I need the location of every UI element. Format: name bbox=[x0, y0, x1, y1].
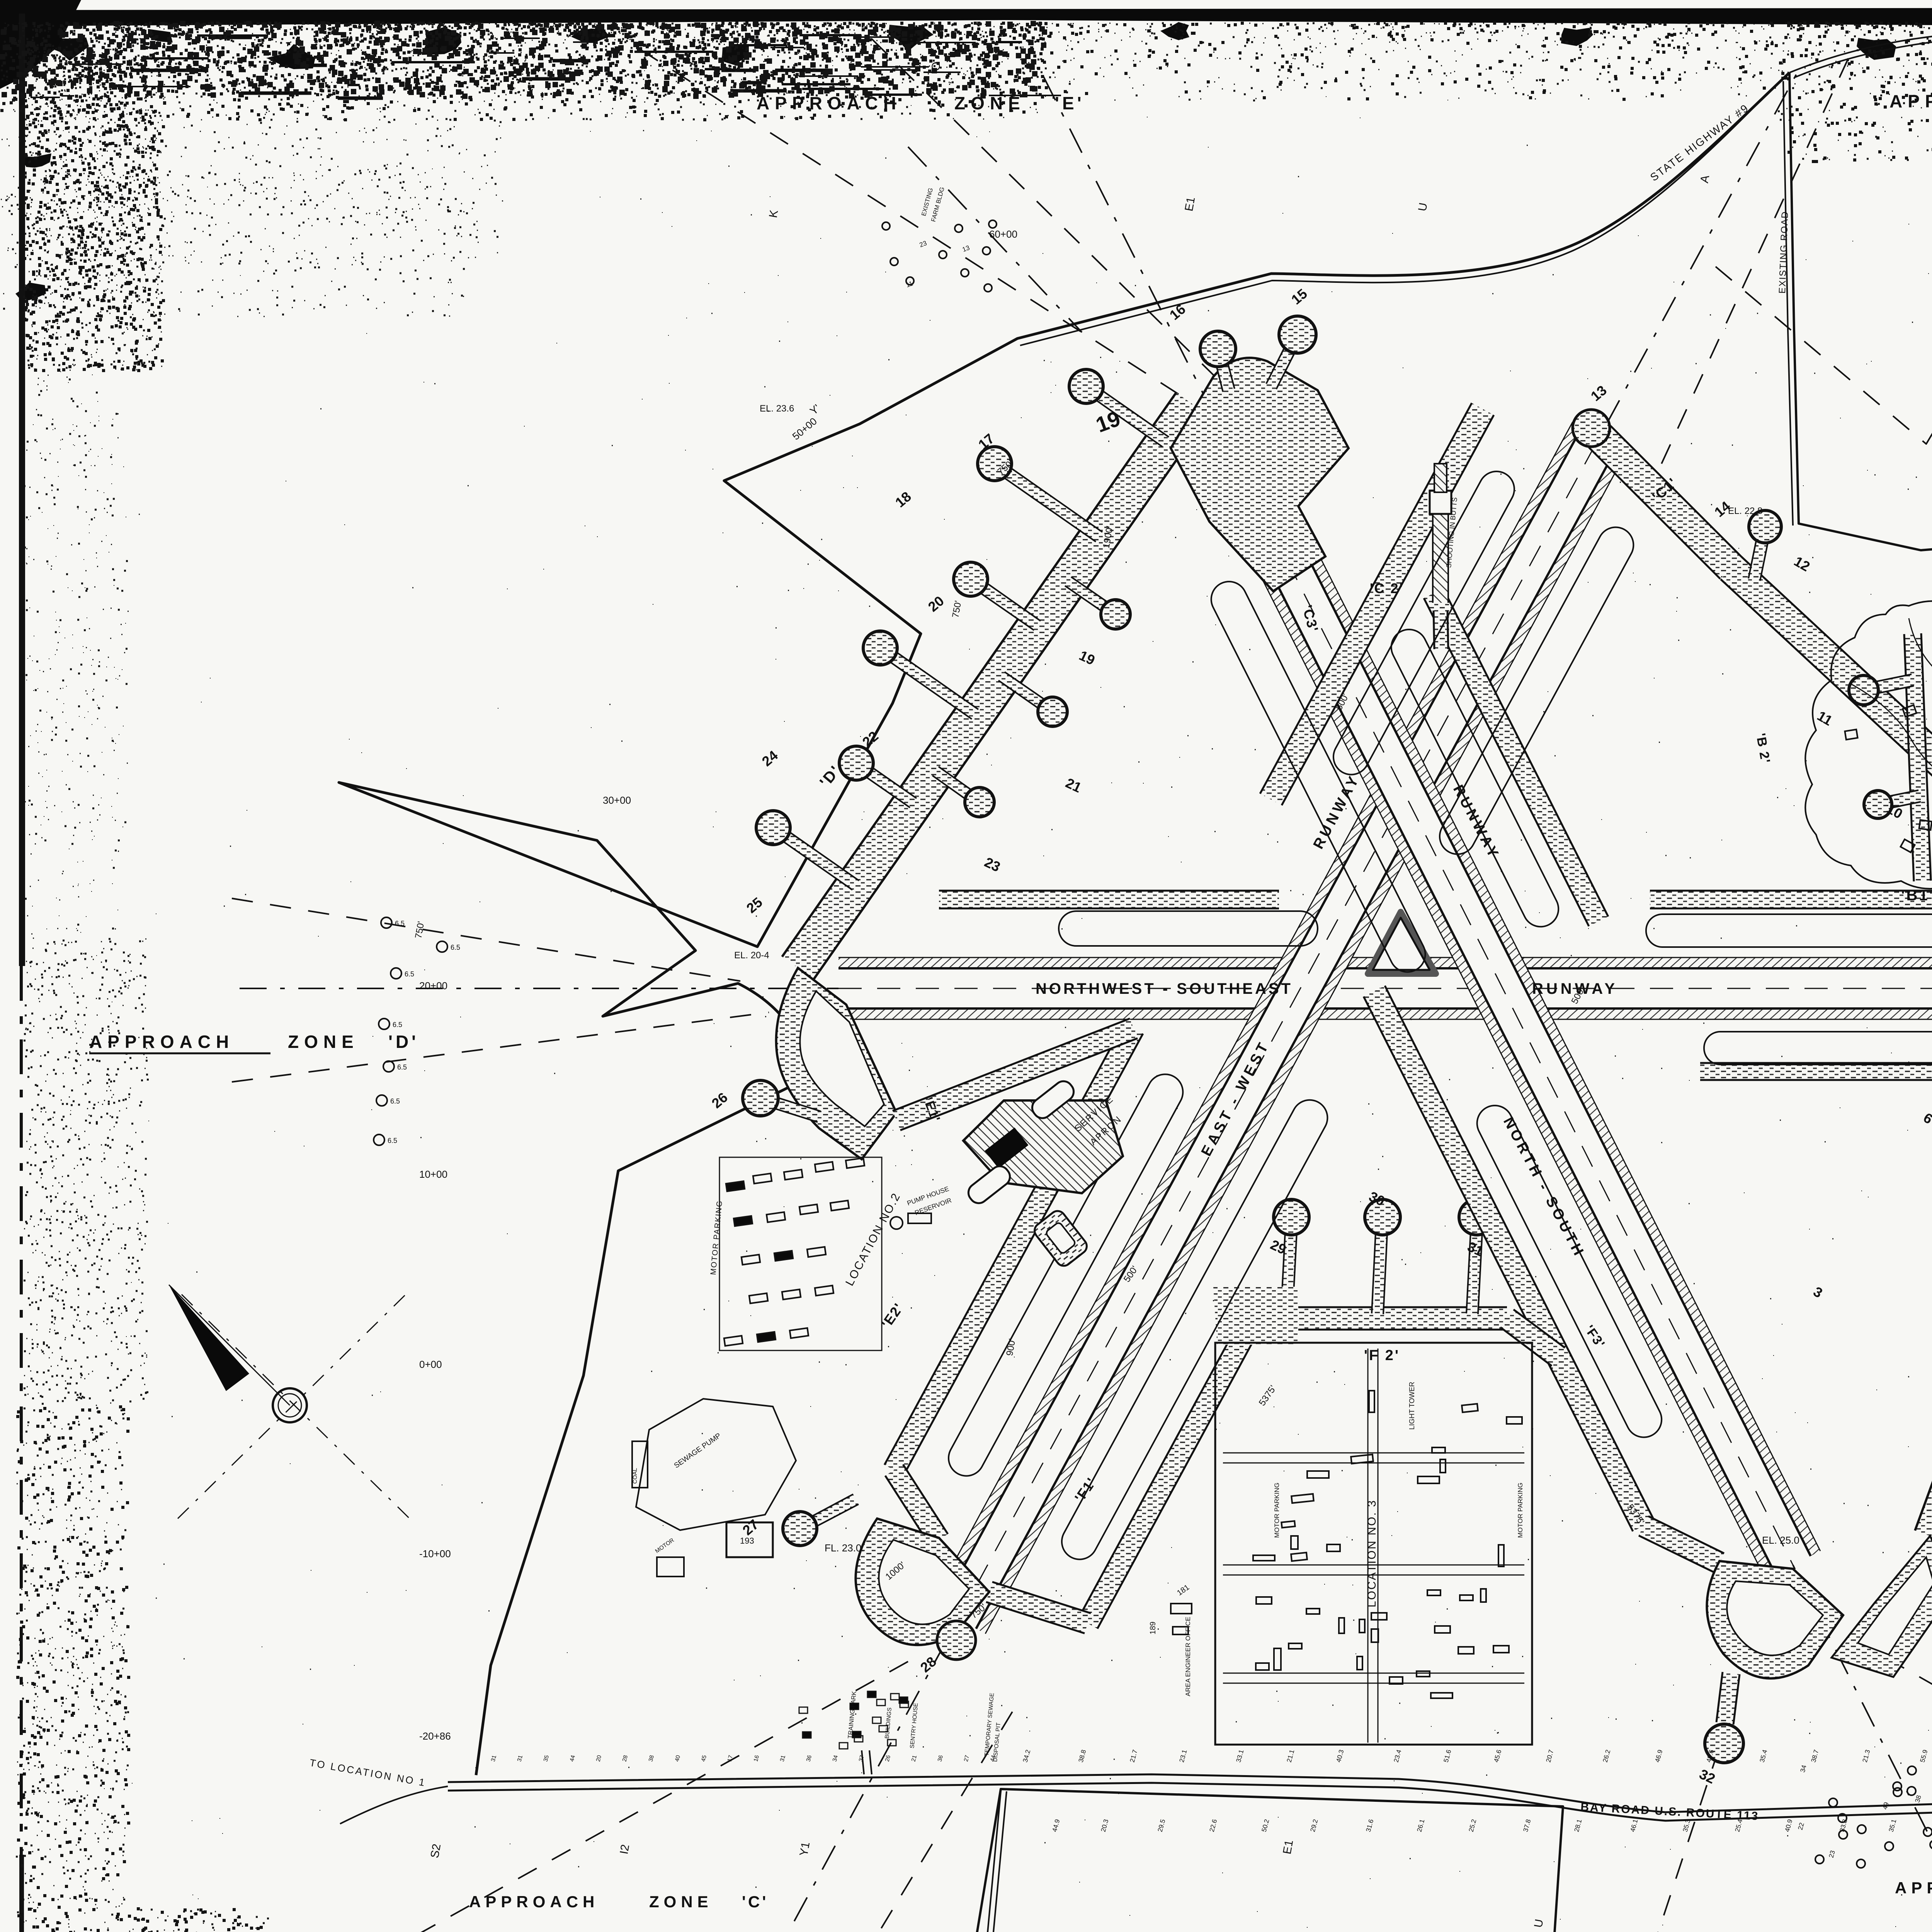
svg-text:6.5: 6.5 bbox=[405, 970, 414, 978]
svg-text:10+00: 10+00 bbox=[419, 1168, 447, 1180]
svg-text:MOTOR PARKING: MOTOR PARKING bbox=[1273, 1483, 1281, 1538]
svg-text:'E': 'E' bbox=[1055, 93, 1085, 113]
svg-text:EL. 20-4: EL. 20-4 bbox=[734, 950, 769, 961]
svg-text:'B1': 'B1' bbox=[1901, 887, 1932, 904]
svg-text:6.5: 6.5 bbox=[397, 1063, 407, 1071]
svg-text:FL. 23.0.: FL. 23.0. bbox=[825, 1542, 864, 1554]
svg-text:6.5: 6.5 bbox=[451, 944, 460, 951]
svg-text:-20+86: -20+86 bbox=[419, 1730, 451, 1742]
svg-text:6.5: 6.5 bbox=[388, 1137, 397, 1145]
svg-text:-10+00: -10+00 bbox=[419, 1548, 451, 1560]
svg-text:EL. 22.8: EL. 22.8 bbox=[1728, 506, 1762, 516]
svg-text:30+00: 30+00 bbox=[603, 794, 631, 806]
svg-text:E1: E1 bbox=[1182, 196, 1197, 212]
svg-text:6.5: 6.5 bbox=[395, 920, 405, 927]
svg-text:EL. 25.0: EL. 25.0 bbox=[1762, 1534, 1799, 1546]
svg-text:Y1: Y1 bbox=[797, 1841, 812, 1857]
svg-text:60+00: 60+00 bbox=[989, 228, 1017, 240]
svg-text:6.5: 6.5 bbox=[393, 1021, 402, 1029]
svg-text:'F 2': 'F 2' bbox=[1364, 1347, 1400, 1364]
svg-text:0+00: 0+00 bbox=[419, 1359, 442, 1370]
svg-text:NORTHWEST - SOUTHEAST: NORTHWEST - SOUTHEAST bbox=[1036, 980, 1293, 997]
svg-text:MOTOR PARKING: MOTOR PARKING bbox=[1517, 1483, 1524, 1538]
svg-text:APPROACH: APPROACH bbox=[469, 1893, 599, 1911]
svg-text:APPROACH: APPROACH bbox=[1895, 1879, 1932, 1897]
svg-text:ZONE: ZONE bbox=[649, 1893, 713, 1911]
svg-text:LIGHT TOWER: LIGHT TOWER bbox=[1408, 1382, 1416, 1430]
svg-text:193: 193 bbox=[740, 1536, 754, 1546]
svg-text:COAL: COAL bbox=[632, 1468, 638, 1484]
svg-text:EL. 23.6: EL. 23.6 bbox=[760, 403, 794, 414]
svg-text:'C': 'C' bbox=[742, 1893, 768, 1911]
svg-text:ZONE: ZONE bbox=[954, 93, 1026, 113]
svg-text:20+00: 20+00 bbox=[419, 980, 447, 992]
svg-text:'C 2': 'C 2' bbox=[1370, 580, 1404, 596]
svg-text:S2: S2 bbox=[428, 1843, 443, 1859]
svg-text:6.5: 6.5 bbox=[390, 1097, 400, 1105]
svg-text:APPROACH: APPROACH bbox=[1889, 91, 1932, 111]
svg-text:E1: E1 bbox=[1281, 1839, 1296, 1855]
svg-text:APPROACH: APPROACH bbox=[89, 1032, 234, 1052]
svg-text:189: 189 bbox=[1149, 1622, 1157, 1634]
svg-text:APPROACH: APPROACH bbox=[757, 93, 901, 113]
svg-text:'D': 'D' bbox=[388, 1032, 419, 1052]
svg-text:ZONE: ZONE bbox=[288, 1032, 359, 1052]
